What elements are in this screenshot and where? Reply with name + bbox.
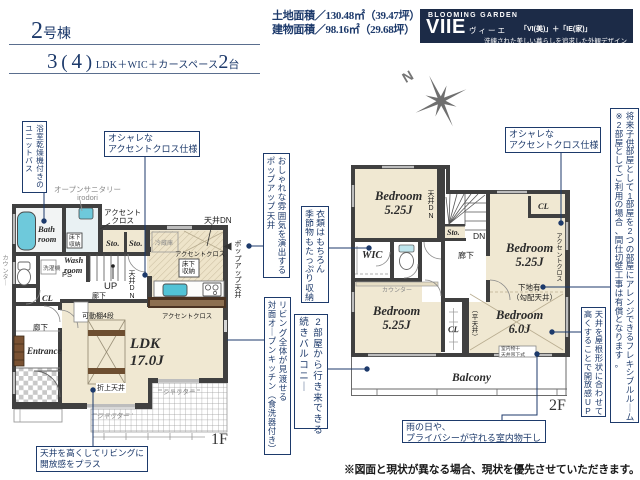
svg-text:N: N (399, 67, 416, 86)
